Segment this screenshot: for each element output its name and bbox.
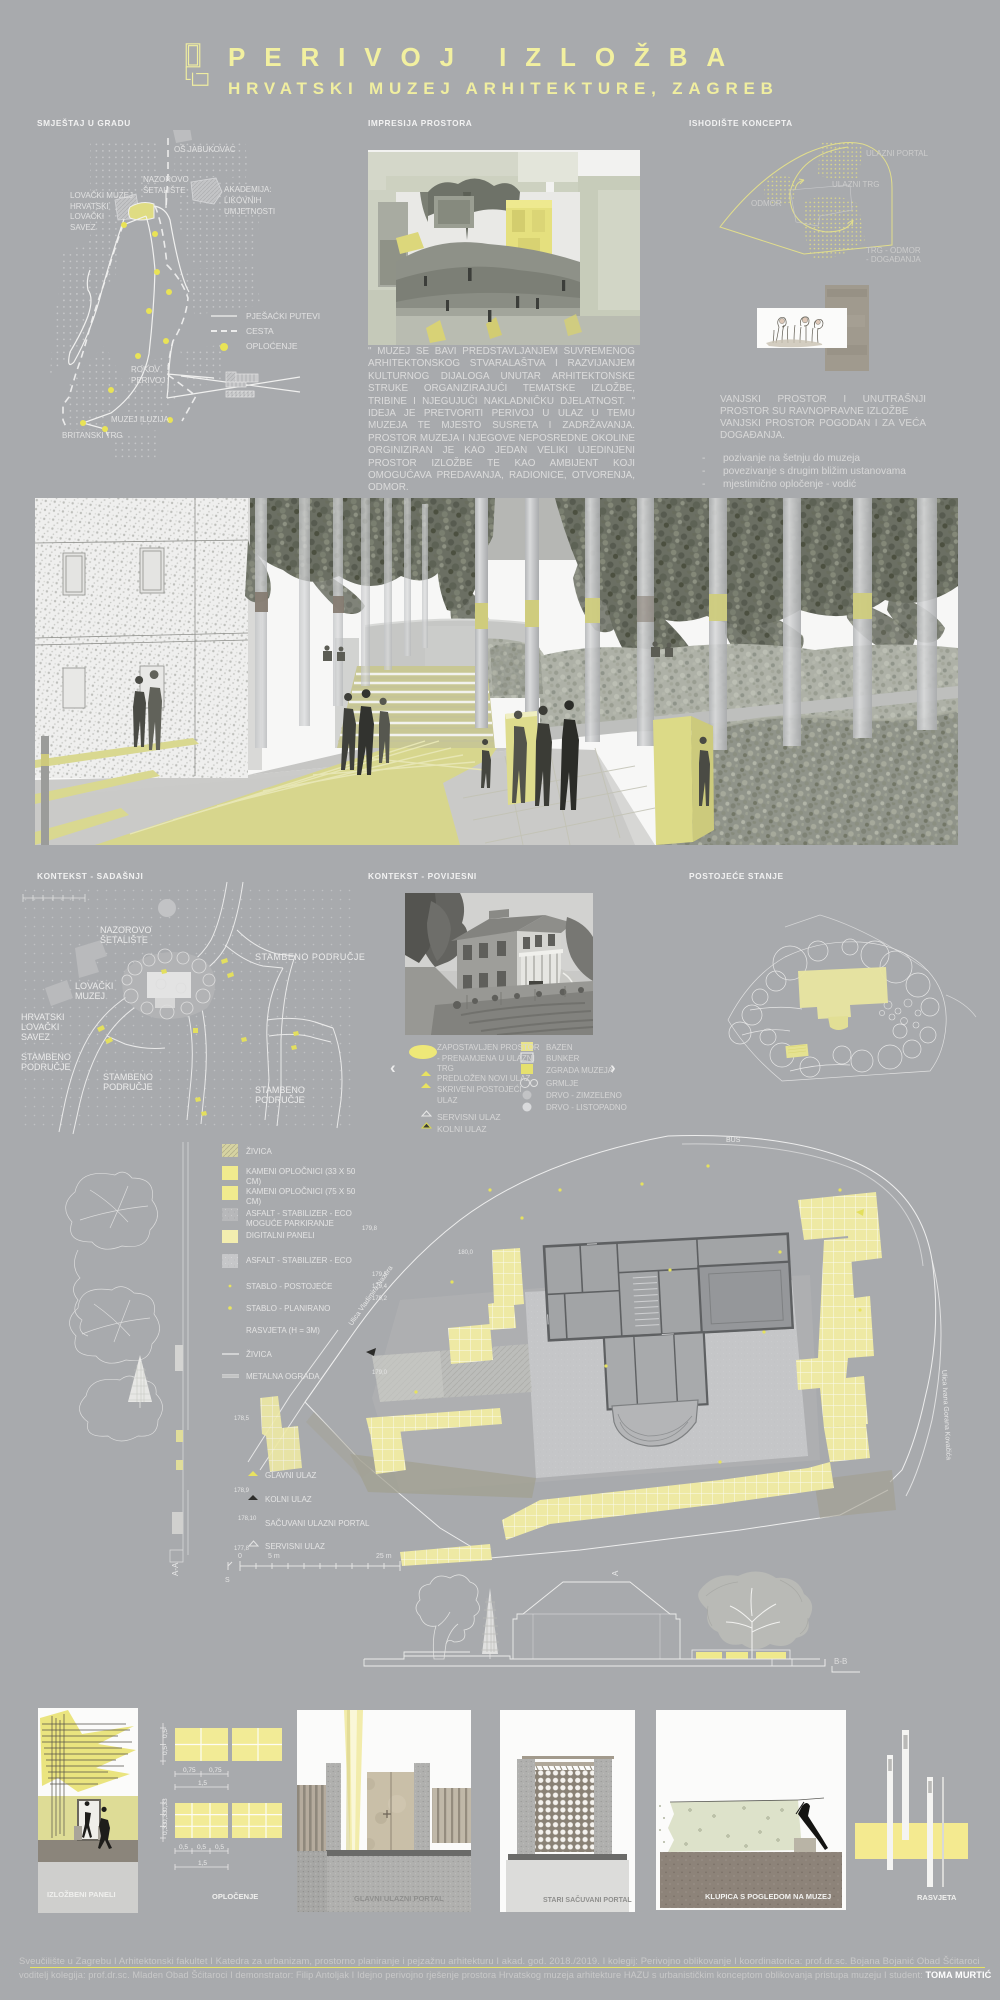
svg-text:0,33: 0,33 (162, 1810, 169, 1823)
svg-text:MOGUĆE PARKIRANJE: MOGUĆE PARKIRANJE (246, 1219, 334, 1228)
svg-text:ŽIVICA: ŽIVICA (246, 1350, 272, 1359)
svg-text:180,0: 180,0 (458, 1250, 474, 1256)
svg-text:SERVISNI ULAZ: SERVISNI ULAZ (265, 1542, 325, 1551)
svg-text:178,10: 178,10 (238, 1516, 257, 1522)
svg-text:1,5: 1,5 (198, 1860, 207, 1867)
svg-text:1,5: 1,5 (198, 1780, 207, 1787)
svg-text:KLUPICA S POGLEDOM NA MUZEJ: KLUPICA S POGLEDOM NA MUZEJ (705, 1892, 831, 1901)
svg-text:0,5: 0,5 (197, 1844, 206, 1851)
svg-text:STABLO - PLANIRANO: STABLO - PLANIRANO (246, 1304, 330, 1313)
svg-text:RASVJETA: RASVJETA (917, 1893, 957, 1902)
svg-text:BUS: BUS (726, 1137, 741, 1144)
svg-text:DIGITALNI PANELI: DIGITALNI PANELI (246, 1231, 315, 1240)
svg-text:GLAVNI ULAZ: GLAVNI ULAZ (265, 1471, 317, 1480)
svg-text:KOLNI ULAZ: KOLNI ULAZ (265, 1495, 312, 1504)
svg-text:ASFALT - STABILIZER - ECO: ASFALT - STABILIZER - ECO (246, 1256, 352, 1265)
svg-text:METALNA OGRADA: METALNA OGRADA (246, 1372, 320, 1381)
svg-text:0,5: 0,5 (162, 1746, 169, 1755)
svg-text:178,5: 178,5 (234, 1416, 250, 1422)
svg-text:S: S (225, 1577, 230, 1584)
svg-text:0,5: 0,5 (179, 1844, 188, 1851)
svg-text:STARI SAČUVANI PORTAL: STARI SAČUVANI PORTAL (543, 1895, 632, 1904)
svg-text:OPLOČENJE: OPLOČENJE (212, 1892, 258, 1901)
svg-text:0: 0 (238, 1553, 242, 1560)
svg-text:SAČUVANI ULAZNI PORTAL: SAČUVANI ULAZNI PORTAL (265, 1519, 370, 1528)
svg-text:0,33: 0,33 (162, 1798, 169, 1811)
svg-text:178,9: 178,9 (234, 1488, 250, 1494)
svg-text:0,75: 0,75 (183, 1767, 196, 1774)
svg-text:179,8: 179,8 (362, 1226, 378, 1232)
svg-text:ASFALT - STABILIZER - ECO: ASFALT - STABILIZER - ECO (246, 1209, 352, 1218)
svg-text:Ulica Ivana Gorana Kovačića: Ulica Ivana Gorana Kovačića (940, 1370, 952, 1461)
svg-text:0,5: 0,5 (162, 1729, 169, 1738)
svg-text:IZLOŽBENI PANELI: IZLOŽBENI PANELI (47, 1890, 116, 1899)
svg-text:RASVJETA (H = 3M): RASVJETA (H = 3M) (246, 1326, 320, 1335)
svg-text:KAMENI OPLOČNICI (75 X 50: KAMENI OPLOČNICI (75 X 50 (246, 1187, 356, 1196)
svg-text:KAMENI OPLOČNICI (33 X 50: KAMENI OPLOČNICI (33 X 50 (246, 1167, 356, 1176)
svg-text:CM): CM) (246, 1197, 261, 1206)
svg-text:5 m: 5 m (268, 1553, 280, 1560)
svg-text:STABLO - POSTOJEĆE: STABLO - POSTOJEĆE (246, 1282, 332, 1291)
svg-text:179,0: 179,0 (372, 1370, 388, 1376)
svg-text:GLAVNI ULAZNI PORTAL: GLAVNI ULAZNI PORTAL (354, 1894, 444, 1903)
svg-text:A-A: A-A (171, 1562, 180, 1576)
svg-text:0,33: 0,33 (162, 1822, 169, 1835)
svg-text:25 m: 25 m (376, 1553, 392, 1560)
svg-text:0,5: 0,5 (215, 1844, 224, 1851)
svg-text:177,8: 177,8 (234, 1546, 250, 1552)
svg-text:ŽIVICA: ŽIVICA (246, 1147, 272, 1156)
svg-text:CM): CM) (246, 1177, 261, 1186)
svg-text:0,75: 0,75 (209, 1767, 222, 1774)
svg-text:B-B: B-B (834, 1657, 847, 1666)
